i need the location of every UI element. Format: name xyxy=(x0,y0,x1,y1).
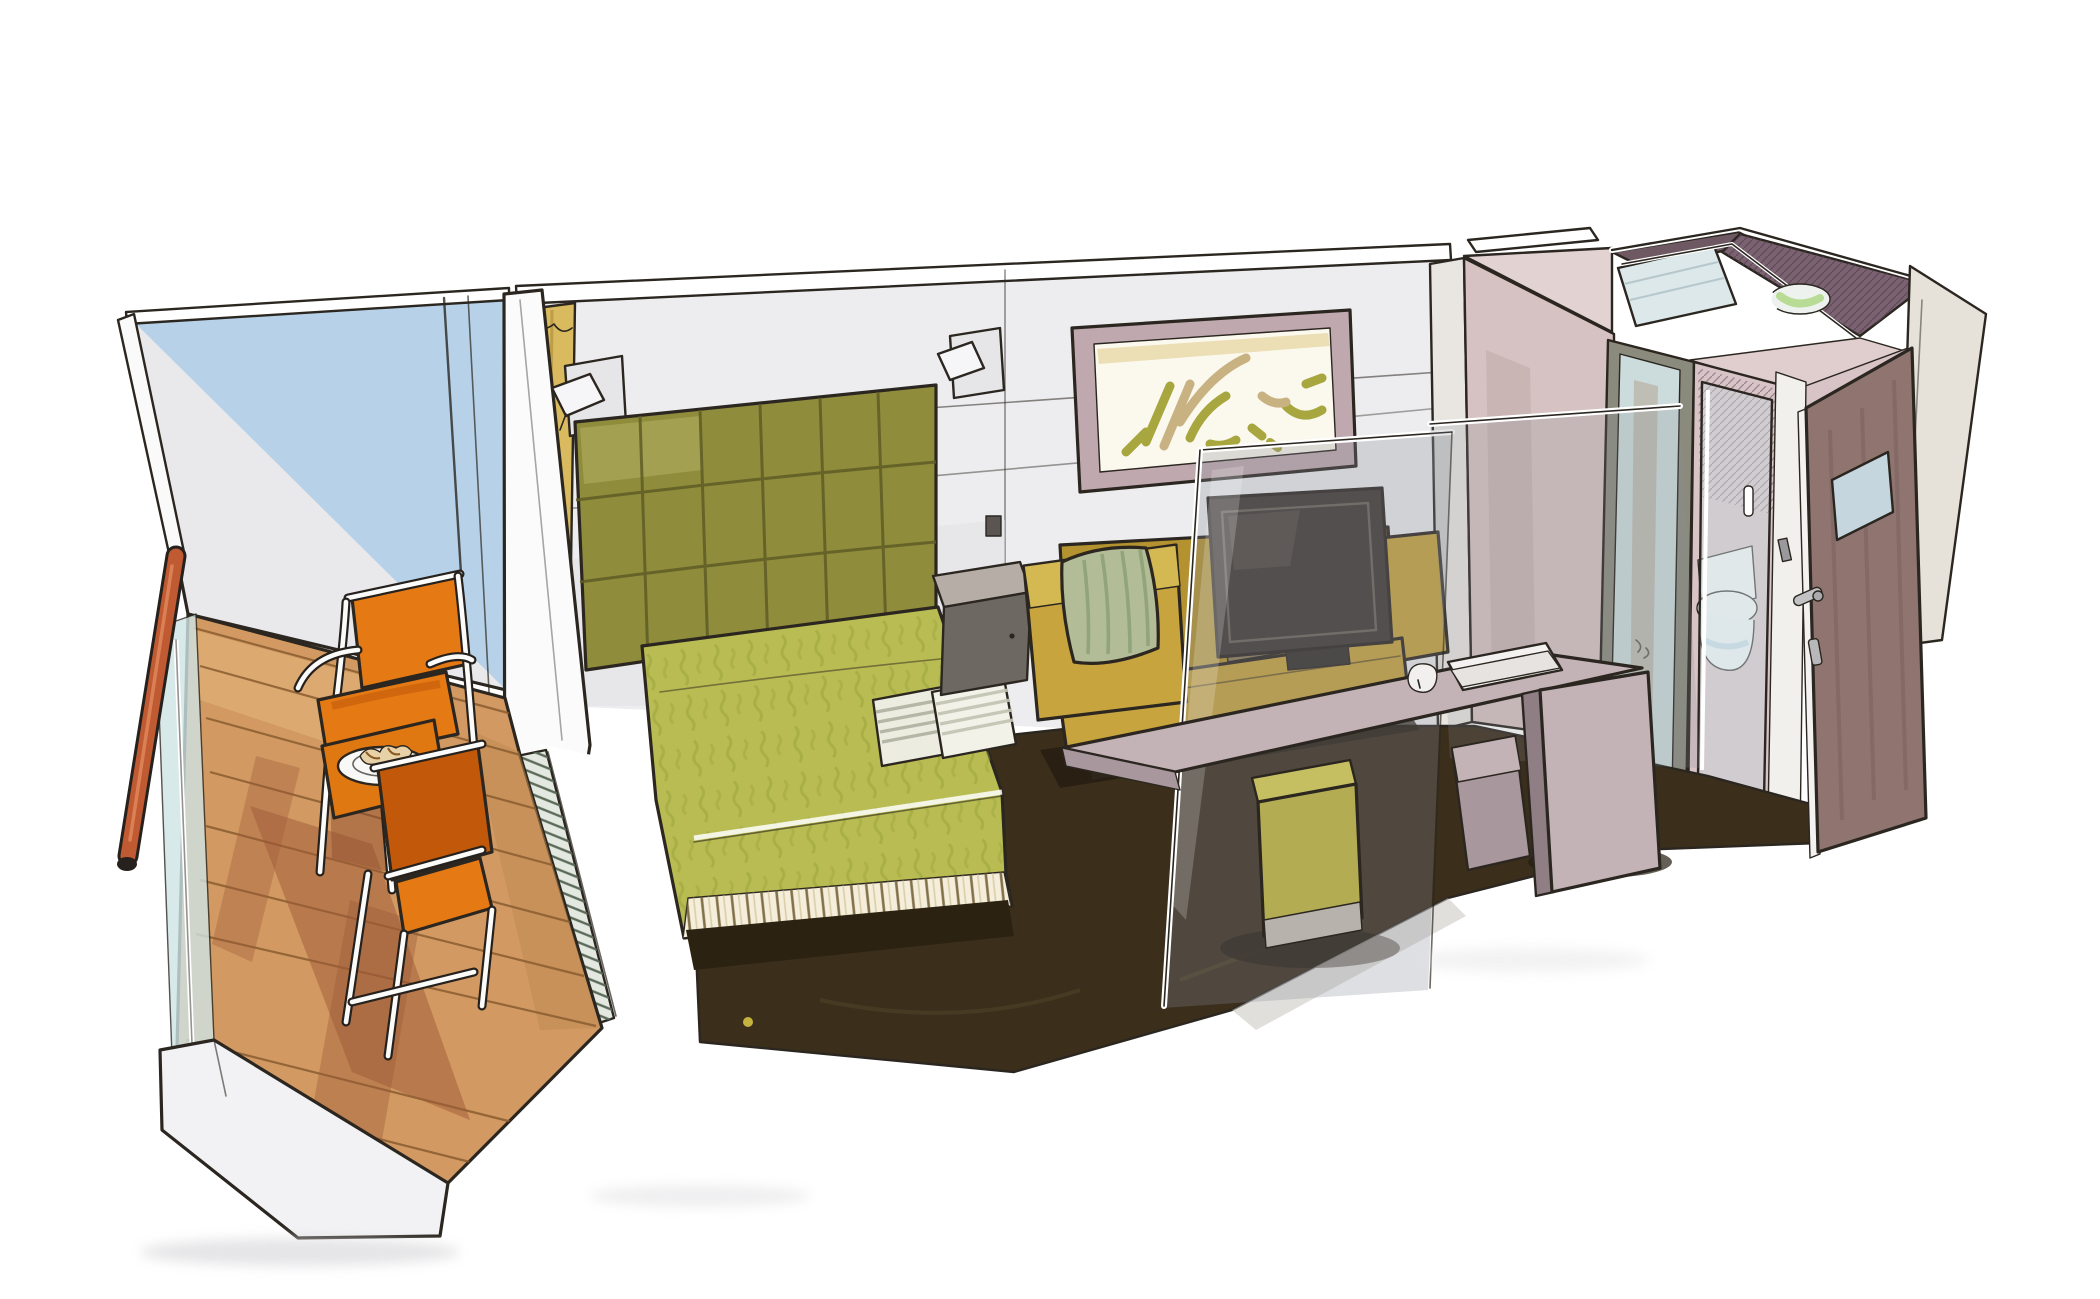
washbasin-top xyxy=(1769,284,1830,314)
shower-door-handle xyxy=(1744,486,1753,516)
luggage-shelf xyxy=(1468,228,1598,252)
handrail-endcap xyxy=(117,857,137,871)
telephone-mouse xyxy=(1408,664,1437,693)
nightstand-front xyxy=(941,592,1031,695)
marker-dot xyxy=(743,1017,753,1027)
wall-outlet xyxy=(986,516,1001,536)
arm-cushion xyxy=(1062,547,1159,663)
shower-glass-door xyxy=(1698,382,1772,800)
nightstand xyxy=(933,562,1031,695)
cabin-cutaway-illustration xyxy=(0,0,2100,1299)
desk-pedestal xyxy=(1540,672,1660,892)
drawer-knob xyxy=(1009,633,1014,638)
pouf-stool xyxy=(1252,760,1362,948)
illustration-canvas xyxy=(0,0,2100,1299)
